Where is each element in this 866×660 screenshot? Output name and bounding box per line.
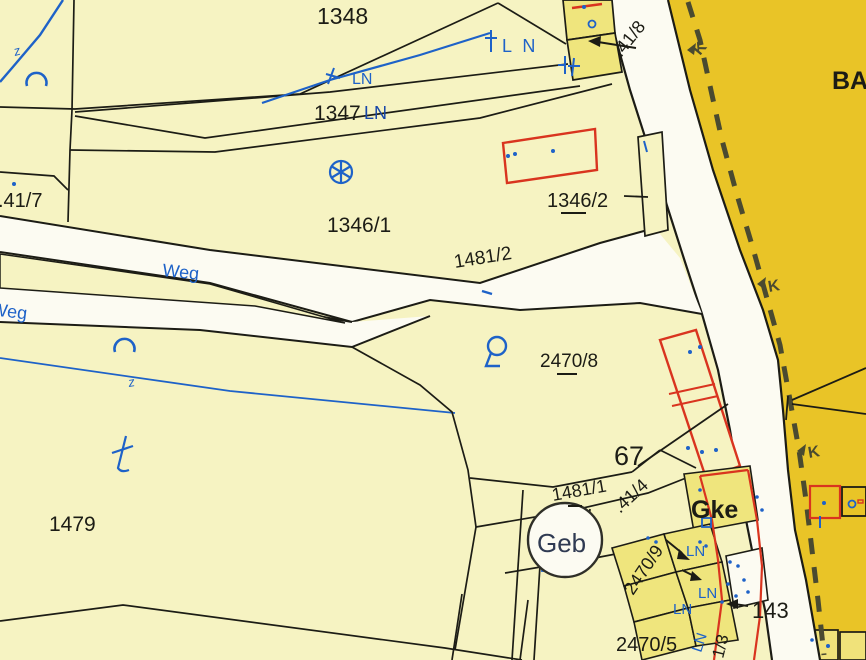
label-gke: Gke (691, 496, 738, 524)
cadastral-map: K K K 1348 1347 LN LN L N 1346/1 1346/2 … (0, 0, 866, 660)
parcel-label-41-7: .41/7 (0, 190, 42, 212)
landuse-label-l-n: L N (502, 36, 538, 56)
point-marker (12, 182, 16, 186)
landuse-label-ln: LN (352, 71, 372, 88)
road-label-weg: Weg (162, 260, 201, 284)
parcel-label-1346-2: 1346/2 (547, 190, 608, 212)
parcel-label-1348: 1348 (317, 3, 368, 29)
landuse-label-ln: LN (686, 543, 705, 560)
road-label-weg-cut: Weg (0, 299, 28, 323)
parcel-label-2470-5: 2470/5 (616, 634, 677, 656)
landuse-label-ln: LN (364, 103, 387, 123)
map-canvas: K K K 1348 1347 LN LN L N 1346/1 1346/2 … (0, 0, 866, 660)
parcel-label-1347: 1347 (314, 102, 361, 125)
parcel-label-67: 67 (614, 441, 644, 471)
parcel-label-1479: 1479 (49, 513, 96, 536)
label-geb: Geb (537, 528, 586, 558)
parcel-label-1346-1: 1346/1 (327, 214, 391, 237)
landuse-label-ln: LN (673, 601, 692, 618)
district-label-ba: BA (832, 67, 866, 95)
parcel-label-143: 143 (752, 598, 789, 623)
landuse-label-ln: LN (698, 585, 717, 602)
parcel-label-2470-8: 2470/8 (540, 351, 598, 372)
